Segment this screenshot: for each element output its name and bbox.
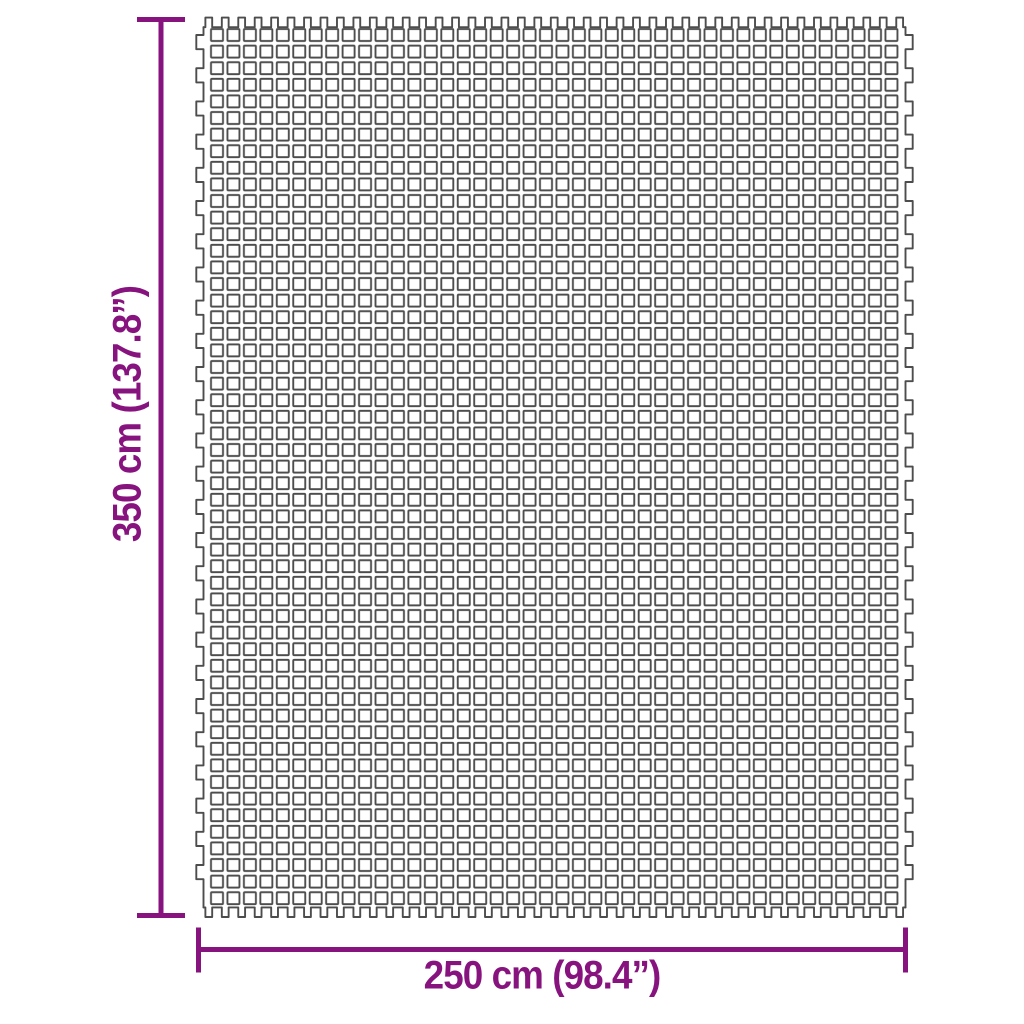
product-dimension-diagram: 350 cm (137.8”) 250 cm (98.4”)	[0, 0, 1024, 1024]
mat-grid-texture	[209, 27, 900, 907]
mat-fringe-left	[196, 27, 203, 907]
height-dimension-label: 350 cm (137.8”)	[106, 286, 151, 542]
mat-fringe-right	[906, 27, 913, 907]
width-dimension-label: 250 cm (98.4”)	[424, 954, 661, 999]
mat-fringe-bottom	[204, 907, 906, 917]
mat-diagram-graphic	[0, 0, 1024, 1024]
mat-fringe-top	[204, 18, 906, 28]
